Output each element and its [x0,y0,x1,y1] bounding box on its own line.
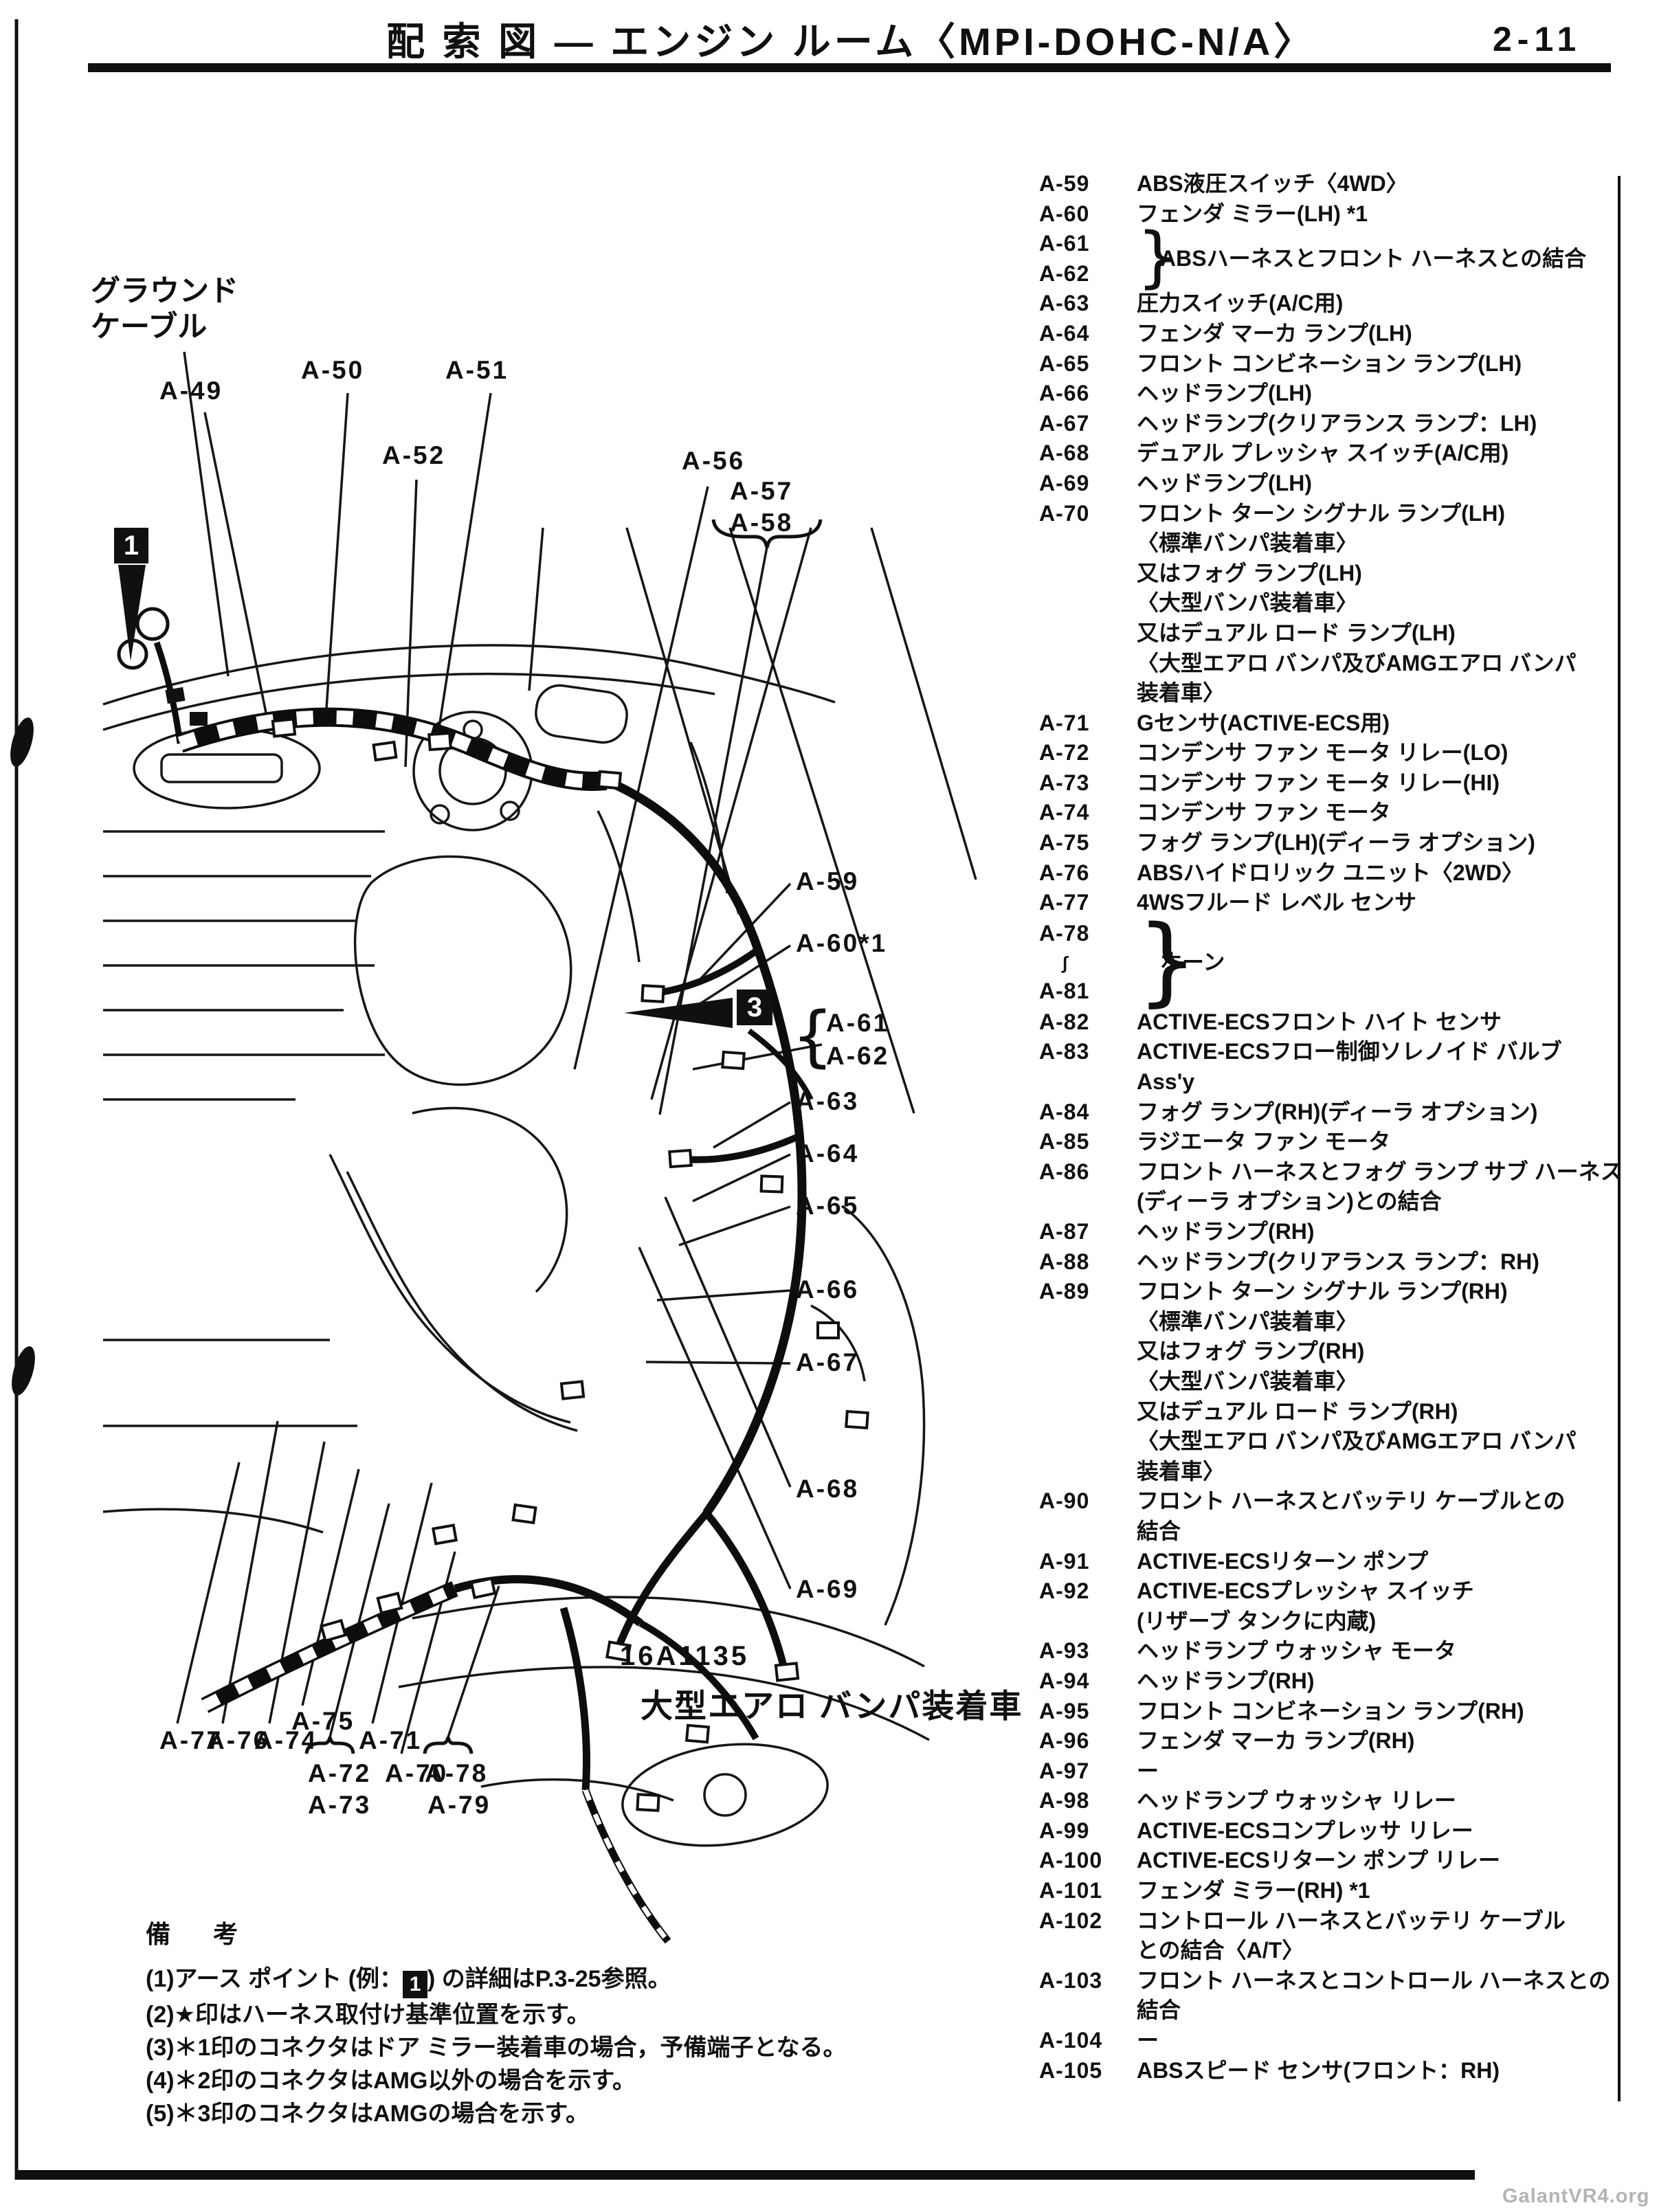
note-item-3: (3)＊1印のコネクタはドア ミラー装着車の場合，予備端子となる。 [146,2031,847,2064]
legend-entry: A-104ー [1039,2026,1623,2056]
notes-block: 備 考 (1)アース ポイント (例：1) の詳細はP.3-25参照。 (2)★… [146,1914,847,2130]
legend-entry: A-92ACTIVE-ECSプレッシャ スイッチ(リザーブ タンクに内蔵) [1039,1576,1623,1636]
legend-description: フェンダ ミラー(RH) *1 [1137,1876,1623,1906]
legend-entry: A-95フロント コンビネーション ランプ(RH) [1039,1697,1623,1727]
legend-description-line: ヘッドランプ(RH) [1137,1666,1623,1697]
legend-description-line: 又はフォグ ランプ(LH) [1137,559,1623,589]
legend-description: コントロール ハーネスとバッテリ ケーブルとの結合〈A/T〉 [1137,1906,1623,1966]
legend-description-line: デュアル プレッシャ スイッチ(A/C用) [1137,438,1623,469]
legend-entry: A-105ABSスピード センサ(フロント：RH) [1039,2056,1623,2086]
legend-entry: A-99ACTIVE-ECSコンプレッサ リレー [1039,1816,1623,1846]
legend-description: ACTIVE-ECSフロー制御ソレノイド バルブAss'y [1137,1037,1623,1097]
legend-description: ヘッドランプ(RH) [1137,1666,1623,1697]
legend-description: Gセンサ(ACTIVE-ECS用) [1137,708,1623,739]
callout-a-61: A-61 [826,1009,889,1038]
legend-description: ー [1137,1756,1623,1787]
legend-code: A-103 [1039,1966,1137,1996]
legend-description-line: 又はデュアル ロード ランプ(LH) [1137,618,1623,649]
legend-description-line: 結合 [1137,1517,1623,1547]
legend-description: フロント コンビネーション ランプ(RH) [1137,1697,1623,1727]
legend-entry: A-96フェンダ マーカ ランプ(RH) [1039,1726,1623,1756]
legend-description-line: フロント ハーネスとフォグ ランプ サブ ハーネス [1137,1157,1623,1187]
legend-entry: A-71Gセンサ(ACTIVE-ECS用) [1039,708,1623,739]
legend-entry: A-61A-62}ABSハーネスとフロント ハーネスとの結合 [1039,229,1623,289]
callout-a-57: A-57 [730,477,793,506]
legend-description: ホーン [1160,948,1623,978]
legend-code: A-89 [1039,1277,1137,1307]
legend-description-line: ヘッドランプ(クリアランス ランプ：RH) [1137,1247,1623,1277]
legend-description-line: ヘッドランプ ウォッシャ リレー [1137,1786,1623,1816]
legend-code: A-82 [1039,1007,1137,1038]
legend-description-line: ヘッドランプ(クリアランス ランプ：LH) [1137,409,1623,439]
legend-description-line: ACTIVE-ECSコンプレッサ リレー [1137,1816,1623,1846]
legend-description-line: コンデンサ ファン モータ [1137,798,1623,828]
legend-entry: A-75フォグ ランプ(LH)(ディーラ オプション) [1039,828,1623,858]
legend-code: A-71 [1039,708,1137,739]
legend-description-line: コンデンサ ファン モータ リレー(HI) [1137,768,1623,798]
legend-description: ACTIVE-ECSフロント ハイト センサ [1137,1007,1623,1038]
callout-a-69: A-69 [796,1575,859,1604]
legend-description: フロント ハーネスとコントロール ハーネスとの結合 [1137,1966,1623,2026]
callout-a-75: A-75 [291,1707,355,1736]
legend-description-line: ABS液圧スイッチ〈4WD〉 [1137,169,1623,199]
callout-a-63: A-63 [796,1087,859,1116]
legend-entry: A-90フロント ハーネスとバッテリ ケーブルとの結合 [1039,1486,1623,1546]
ground-point-marker-1: 1 [114,528,148,563]
legend-code: A-85 [1039,1127,1137,1157]
legend-code: A-67 [1039,409,1137,439]
manual-page: 配 索 図 ― エンジン ルーム〈MPI-DOHC-N/A〉 2-11 グラウン… [0,0,1670,2212]
legend-code: A-98 [1039,1786,1137,1816]
legend-description-line: 装着車〉 [1137,1457,1623,1487]
callout-a-78: A-78 [425,1759,488,1788]
legend-code: A-96 [1039,1726,1137,1756]
legend-entry: A-91ACTIVE-ECSリターン ポンプ [1039,1547,1623,1577]
legend-description: フォグ ランプ(RH)(ディーラ オプション) [1137,1097,1623,1128]
note-item-1-pre: (1)アース ポイント (例： [146,1966,403,1992]
legend-code: A-87 [1039,1217,1137,1247]
legend-entry: A-89フロント ターン シグナル ランプ(RH)〈標準バンパ装着車〉又はフォグ… [1039,1277,1623,1486]
legend-description: デュアル プレッシャ スイッチ(A/C用) [1137,438,1623,469]
legend-entry: A-69ヘッドランプ(LH) [1039,469,1623,499]
callout-a-51: A-51 [445,356,509,385]
legend-description: ABSハイドロリック ユニット〈2WD〉 [1137,858,1623,889]
callout-a-52: A-52 [382,441,445,470]
legend-description: ABSスピード センサ(フロント：RH) [1137,2056,1623,2086]
legend-entry: A-98ヘッドランプ ウォッシャ リレー [1039,1786,1623,1816]
legend-description: 圧力スイッチ(A/C用) [1137,289,1623,319]
legend-brace: } [1137,917,1160,1006]
legend-code: A-83 [1039,1037,1137,1067]
legend-code: A-78 [1039,919,1137,949]
legend-description: ACTIVE-ECSプレッシャ スイッチ(リザーブ タンクに内蔵) [1137,1576,1623,1636]
legend-description-line: 装着車〉 [1137,678,1623,708]
legend-description: フロント ターン シグナル ランプ(LH)〈標準バンパ装着車〉又はフォグ ランプ… [1137,499,1623,708]
note-item-1-post: ) の詳細はP.3-25参照。 [427,1966,671,1992]
legend-code: A-92 [1039,1576,1137,1607]
legend-entry: A-63圧力スイッチ(A/C用) [1039,289,1623,319]
legend-description: ヘッドランプ(クリアランス ランプ：RH) [1137,1247,1623,1277]
legend-description-line: 又はデュアル ロード ランプ(RH) [1137,1397,1623,1427]
legend-description-line: ABSスピード センサ(フロント：RH) [1137,2056,1623,2086]
legend-description-line: 〈標準バンパ装着車〉 [1137,528,1623,559]
legend-code: A-99 [1039,1816,1137,1846]
legend-entry: A-78∫A-81}ホーン [1039,918,1623,1007]
legend-entry: A-86フロント ハーネスとフォグ ランプ サブ ハーネス(ディーラ オプション… [1039,1157,1623,1217]
legend-description-line: Ass'y [1137,1067,1623,1097]
legend-entry: A-774WSフルード レベル センサ [1039,888,1623,918]
legend-description: フロント ハーネスとバッテリ ケーブルとの結合 [1137,1486,1623,1546]
legend-description-line: コントロール ハーネスとバッテリ ケーブル [1137,1906,1623,1936]
legend-description-line: 結合 [1137,1996,1623,2026]
figure-caption: 大型エアロ バンパ装着車 [641,1679,1023,1727]
legend-entry: A-85ラジエータ ファン モータ [1039,1127,1623,1157]
ground-cable-label: グラウンド ケーブル [91,273,238,345]
legend-description: コンデンサ ファン モータ リレー(HI) [1137,768,1623,798]
legend-description-line: (リザーブ タンクに内蔵) [1137,1607,1623,1637]
note-item-4: (4)＊2印のコネクタはAMG以外の場合を示す。 [146,2064,847,2097]
ground-cable-label-line2: ケーブル [91,309,238,345]
legend-code: A-86 [1039,1157,1137,1187]
legend-code: A-59 [1039,169,1137,199]
callout-a-58: A-58 [730,509,793,537]
legend-description-line: ヘッドランプ ウォッシャ モータ [1137,1636,1623,1666]
legend-description-line: フロント コンビネーション ランプ(LH) [1137,349,1623,379]
callout-a-50: A-50 [301,356,364,385]
legend-description-line: ABSハーネスとフロント ハーネスとの結合 [1160,244,1623,274]
legend-entry: A-100ACTIVE-ECSリターン ポンプ リレー [1039,1846,1623,1876]
legend-description: ラジエータ ファン モータ [1137,1127,1623,1157]
ground-cable-label-line1: グラウンド [91,273,238,309]
legend-brace: } [1137,227,1160,287]
legend-description-line: フォグ ランプ(LH)(ディーラ オプション) [1137,828,1623,858]
legend-description-line: ACTIVE-ECSフロント ハイト センサ [1137,1007,1623,1038]
legend-code: A-97 [1039,1756,1137,1787]
legend-description: ー [1137,2026,1623,2056]
note-item-1: (1)アース ポイント (例：1) の詳細はP.3-25参照。 [146,1963,847,1998]
legend-description: ヘッドランプ ウォッシャ モータ [1137,1636,1623,1666]
legend-description: ヘッドランプ(RH) [1137,1217,1623,1247]
legend-description-line: 〈大型エアロ バンパ及びAMGエアロ バンパ [1137,649,1623,679]
legend-description: ヘッドランプ(LH) [1137,469,1623,499]
legend-description-line: ー [1137,2026,1623,2056]
legend-description: フロント ハーネスとフォグ ランプ サブ ハーネス(ディーラ オプション)との結… [1137,1157,1623,1217]
legend-entry: A-94ヘッドランプ(RH) [1039,1666,1623,1697]
legend-code: A-64 [1039,319,1137,349]
legend-entry: A-74コンデンサ ファン モータ [1039,798,1623,828]
legend-description-line: 〈大型バンパ装着車〉 [1137,588,1623,618]
legend-description-line: との結合〈A/T〉 [1137,1936,1623,1966]
legend-entry: A-82ACTIVE-ECSフロント ハイト センサ [1039,1007,1623,1038]
legend-entry: A-101フェンダ ミラー(RH) *1 [1039,1876,1623,1906]
callout-a-62: A-62 [826,1042,889,1071]
legend-description-line: フロント ハーネスとバッテリ ケーブルとの [1137,1486,1623,1517]
legend-description-line: ACTIVE-ECSフロー制御ソレノイド バルブ [1137,1037,1623,1067]
legend-code: A-93 [1039,1636,1137,1666]
legend-description: ヘッドランプ(クリアランス ランプ：LH) [1137,409,1623,439]
legend-entry: A-103フロント ハーネスとコントロール ハーネスとの結合 [1039,1966,1623,2026]
legend-description-line: 〈大型エアロ バンパ及びAMGエアロ バンパ [1137,1427,1623,1457]
legend-description-line: 4WSフルード レベル センサ [1137,888,1623,918]
legend-description-line: フロント コンビネーション ランプ(RH) [1137,1697,1623,1727]
legend-code: A-94 [1039,1666,1137,1697]
legend-description-line: フェンダ マーカ ランプ(LH) [1137,319,1623,349]
legend-entry: A-68デュアル プレッシャ スイッチ(A/C用) [1039,438,1623,469]
legend-entry: A-64フェンダ マーカ ランプ(LH) [1039,319,1623,349]
legend-entry: A-84フォグ ランプ(RH)(ディーラ オプション) [1039,1097,1623,1128]
legend-entry: A-66ヘッドランプ(LH) [1039,379,1623,409]
callout-a-71: A-71 [359,1726,422,1755]
callout-a-68: A-68 [796,1475,859,1504]
legend-code: A-102 [1039,1906,1137,1936]
legend-description-line: 又はフォグ ランプ(RH) [1137,1337,1623,1367]
callout-a-72: A-72 [308,1759,371,1788]
callout-a-66: A-66 [796,1275,859,1304]
legend-code: A-100 [1039,1846,1137,1876]
legend-code: A-91 [1039,1547,1137,1577]
legend-code: A-70 [1039,499,1137,529]
legend-entry: A-59ABS液圧スイッチ〈4WD〉 [1039,169,1623,199]
legend-description-line: ー [1137,1756,1623,1787]
legend-description-line: ヘッドランプ(RH) [1137,1217,1623,1247]
legend-code: A-62 [1039,259,1137,289]
legend-code: A-84 [1039,1097,1137,1128]
legend-description-line: 〈大型バンパ装着車〉 [1137,1367,1623,1397]
legend-description-line: ABSハイドロリック ユニット〈2WD〉 [1137,858,1623,889]
callout-a-60-1: A-60*1 [796,929,887,958]
connector-marker-3: 3 [737,990,772,1025]
legend-entry: A-65フロント コンビネーション ランプ(LH) [1039,349,1623,379]
legend-entry: A-70フロント ターン シグナル ランプ(LH)〈標準バンパ装着車〉又はフォグ… [1039,499,1623,708]
legend-code: A-61 [1039,229,1137,259]
legend-description: フロント ターン シグナル ランプ(RH)〈標準バンパ装着車〉又はフォグ ランプ… [1137,1277,1623,1486]
callout-a-65: A-65 [796,1192,859,1220]
legend-description-line: フロント ハーネスとコントロール ハーネスとの [1137,1966,1623,1996]
legend-entry: A-67ヘッドランプ(クリアランス ランプ：LH) [1039,409,1623,439]
legend-description-line: フェンダ ミラー(LH) *1 [1137,199,1623,230]
legend-description-line: ACTIVE-ECSプレッシャ スイッチ [1137,1576,1623,1607]
legend-description-line: ヘッドランプ(LH) [1137,469,1623,499]
figure-number: 16A1135 [620,1641,749,1672]
callout-a-79: A-79 [427,1791,491,1820]
ground-point-marker-inline: 1 [403,1971,427,1998]
legend-code: A-63 [1039,289,1137,319]
legend-description-line: フロント ターン シグナル ランプ(LH) [1137,499,1623,529]
legend-entry: A-88ヘッドランプ(クリアランス ランプ：RH) [1039,1247,1623,1277]
legend-entry: A-83ACTIVE-ECSフロー制御ソレノイド バルブAss'y [1039,1037,1623,1097]
legend-code: A-77 [1039,888,1137,918]
legend-description-line: 圧力スイッチ(A/C用) [1137,289,1623,319]
legend-code: ∫ [1039,949,1137,976]
legend-description: フォグ ランプ(LH)(ディーラ オプション) [1137,828,1623,858]
legend-code: A-75 [1039,828,1137,858]
callout-a-49: A-49 [159,377,223,405]
legend-description: ACTIVE-ECSコンプレッサ リレー [1137,1816,1623,1846]
legend-description-line: (ディーラ オプション)との結合 [1137,1187,1623,1217]
legend-description-line: 〈標準バンパ装着車〉 [1137,1307,1623,1337]
legend-code: A-90 [1039,1486,1137,1517]
legend-entry: A-93ヘッドランプ ウォッシャ モータ [1039,1636,1623,1666]
legend-description-line: ACTIVE-ECSリターン ポンプ [1137,1547,1623,1577]
legend-entry: A-87ヘッドランプ(RH) [1039,1217,1623,1247]
legend-description: ACTIVE-ECSリターン ポンプ リレー [1137,1846,1623,1876]
legend-code: A-88 [1039,1247,1137,1277]
legend-description-line: ホーン [1160,948,1623,978]
page-number: 2-11 [1493,19,1581,59]
legend-description-line: フェンダ ミラー(RH) *1 [1137,1876,1623,1906]
legend-description: 4WSフルード レベル センサ [1137,888,1623,918]
page-title: 配 索 図 ― エンジン ルーム〈MPI-DOHC-N/A〉 [386,11,1315,67]
legend-description: ACTIVE-ECSリターン ポンプ [1137,1547,1623,1577]
note-item-2: (2)★印はハーネス取付け基準位置を示す。 [146,1998,847,2031]
legend-code: A-81 [1039,976,1137,1007]
callout-a-64: A-64 [796,1139,859,1168]
callout-a-73: A-73 [308,1791,371,1820]
legend-description-line: ACTIVE-ECSリターン ポンプ リレー [1137,1846,1623,1876]
legend-description: フェンダ マーカ ランプ(LH) [1137,319,1623,349]
legend-code-group: A-78∫A-81 [1039,919,1137,1006]
legend-description: フロント コンビネーション ランプ(LH) [1137,349,1623,379]
legend-code: A-72 [1039,738,1137,768]
callout-a-59: A-59 [796,867,859,896]
legend-description-line: フォグ ランプ(RH)(ディーラ オプション) [1137,1097,1623,1128]
legend-code: A-76 [1039,858,1137,889]
legend-code: A-95 [1039,1697,1137,1727]
legend-code: A-65 [1039,349,1137,379]
note-item-5: (5)＊3印のコネクタはAMGの場合を示す。 [146,2097,847,2130]
legend-entry: A-97ー [1039,1756,1623,1787]
watermark: GalantVR4.org [1502,2185,1649,2208]
legend-entry: A-76ABSハイドロリック ユニット〈2WD〉 [1039,858,1623,889]
legend-code-group: A-61A-62 [1039,229,1137,289]
legend-description: コンデンサ ファン モータ リレー(LO) [1137,738,1623,768]
notes-heading: 備 考 [146,1914,847,1950]
legend-description: フェンダ マーカ ランプ(RH) [1137,1726,1623,1756]
legend-description: コンデンサ ファン モータ [1137,798,1623,828]
callout-a-56: A-56 [682,447,745,476]
legend-list: A-59ABS液圧スイッチ〈4WD〉A-60フェンダ ミラー(LH) *1A-6… [1039,169,1623,2086]
legend-description: ABSハーネスとフロント ハーネスとの結合 [1160,244,1623,274]
legend-description-line: フェンダ マーカ ランプ(RH) [1137,1726,1623,1756]
legend-description: ヘッドランプ ウォッシャ リレー [1137,1786,1623,1816]
legend-entry: A-73コンデンサ ファン モータ リレー(HI) [1039,768,1623,798]
legend-code: A-105 [1039,2056,1137,2086]
legend-description-line: コンデンサ ファン モータ リレー(LO) [1137,738,1623,768]
legend-description-line: フロント ターン シグナル ランプ(RH) [1137,1277,1623,1307]
legend-description-line: ラジエータ ファン モータ [1137,1127,1623,1157]
legend-code: A-104 [1039,2026,1137,2056]
legend-code: A-68 [1039,438,1137,469]
legend-description: ヘッドランプ(LH) [1137,379,1623,409]
callout-a-67: A-67 [796,1348,859,1377]
legend-description-line: ヘッドランプ(LH) [1137,379,1623,409]
legend-description-line: Gセンサ(ACTIVE-ECS用) [1137,708,1623,739]
legend-code: A-101 [1039,1876,1137,1906]
legend-entry: A-60フェンダ ミラー(LH) *1 [1039,199,1623,230]
note-items: (2)★印はハーネス取付け基準位置を示す。(3)＊1印のコネクタはドア ミラー装… [146,1998,847,2130]
legend-description: フェンダ ミラー(LH) *1 [1137,199,1623,230]
legend-code: A-74 [1039,798,1137,828]
legend-description: ABS液圧スイッチ〈4WD〉 [1137,169,1623,199]
legend-code: A-73 [1039,768,1137,798]
legend-code: A-66 [1039,379,1137,409]
legend-code: A-69 [1039,469,1137,499]
legend-code: A-60 [1039,199,1137,230]
legend-entry: A-102コントロール ハーネスとバッテリ ケーブルとの結合〈A/T〉 [1039,1906,1623,1966]
legend-entry: A-72コンデンサ ファン モータ リレー(LO) [1039,738,1623,768]
